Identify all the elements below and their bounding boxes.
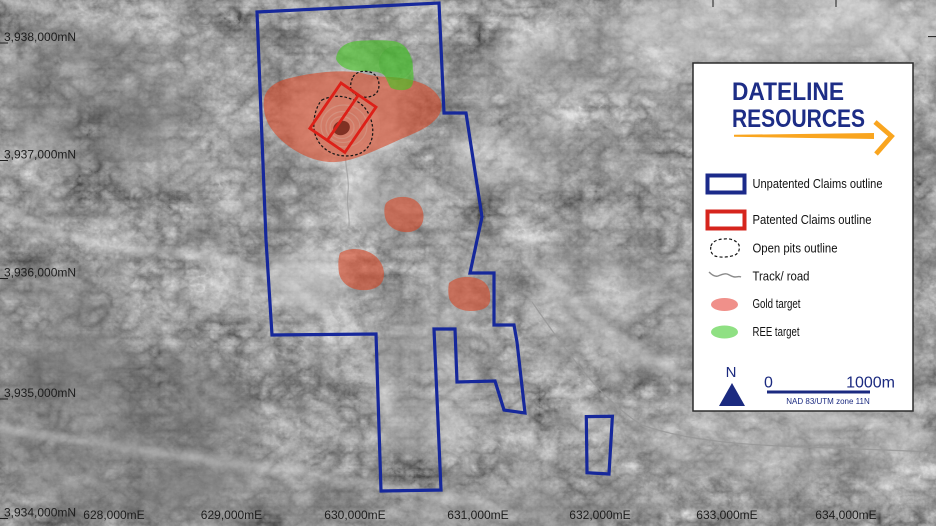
svg-text:Unpatented Claims outline: Unpatented Claims outline — [753, 177, 883, 191]
svg-text:3,935,000mN: 3,935,000mN — [4, 386, 76, 400]
svg-text:DATELINE: DATELINE — [732, 78, 844, 106]
svg-text:630,000mE: 630,000mE — [324, 508, 385, 522]
svg-text:3,934,000mN: 3,934,000mN — [4, 506, 76, 520]
svg-text:634,000mE: 634,000mE — [815, 508, 876, 522]
svg-text:631,000mE: 631,000mE — [447, 508, 508, 522]
svg-text:RESOURCES: RESOURCES — [732, 105, 865, 133]
svg-text:628,000mE: 628,000mE — [83, 508, 144, 522]
svg-text:3,938,000mN: 3,938,000mN — [4, 30, 76, 44]
svg-text:0: 0 — [764, 375, 773, 392]
svg-text:633,000mE: 633,000mE — [696, 508, 757, 522]
svg-text:Open pits outline: Open pits outline — [753, 242, 838, 256]
svg-text:1000m: 1000m — [846, 375, 895, 392]
svg-text:Gold target: Gold target — [753, 297, 801, 311]
svg-text:REE target: REE target — [753, 325, 800, 339]
svg-text:629,000mE: 629,000mE — [201, 508, 262, 522]
svg-text:N: N — [726, 364, 737, 381]
svg-text:Track/ road: Track/ road — [753, 270, 810, 284]
svg-text:NAD 83/UTM zone 11N: NAD 83/UTM zone 11N — [786, 397, 870, 406]
svg-text:3,936,000mN: 3,936,000mN — [4, 266, 76, 280]
svg-text:3,937,000mN: 3,937,000mN — [4, 148, 76, 162]
svg-text:Patented Claims outline: Patented Claims outline — [753, 213, 872, 227]
svg-text:632,000mE: 632,000mE — [569, 508, 630, 522]
